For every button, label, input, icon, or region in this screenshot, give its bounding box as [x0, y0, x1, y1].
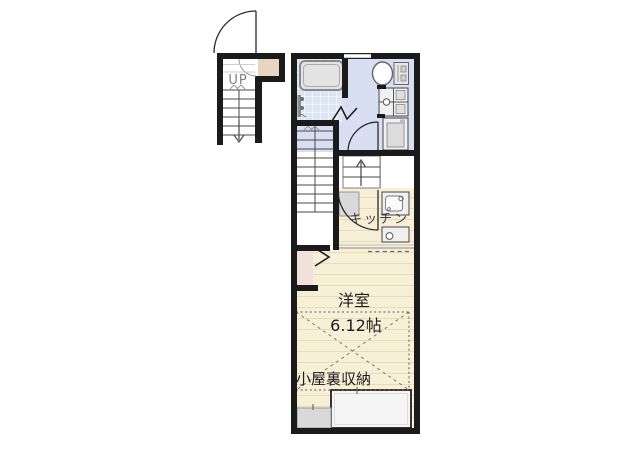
stair-landing [343, 156, 380, 188]
floorplan-drawing: UP [0, 0, 640, 451]
stove-unit [382, 227, 409, 242]
small-storage-box [297, 404, 331, 428]
main-unit: キッチン 洋室 6.12帖 小屋裏収納 [291, 53, 420, 434]
toilet [373, 62, 409, 85]
window [344, 54, 371, 58]
vanity-sink [379, 88, 408, 116]
entrance-stairwell: UP [214, 11, 285, 145]
entry-stair-upper-treads [223, 65, 255, 73]
down-arrow-icon [234, 120, 244, 142]
up-label: UP [228, 73, 247, 88]
storage-unit [331, 387, 411, 428]
closet-floor [297, 251, 313, 285]
bathtub [300, 61, 343, 90]
entrance-door-arc [214, 11, 256, 53]
attic-label: 小屋裏収納 [296, 370, 371, 388]
room-label: 洋室 [338, 291, 370, 310]
genkan-floor [258, 59, 279, 76]
kitchen-label: キッチン [349, 212, 409, 227]
upper-hall-floor [380, 156, 414, 190]
washer-space [383, 118, 408, 150]
floorplan-canvas: UP [0, 0, 640, 451]
room-size-label: 6.12帖 [330, 316, 382, 335]
